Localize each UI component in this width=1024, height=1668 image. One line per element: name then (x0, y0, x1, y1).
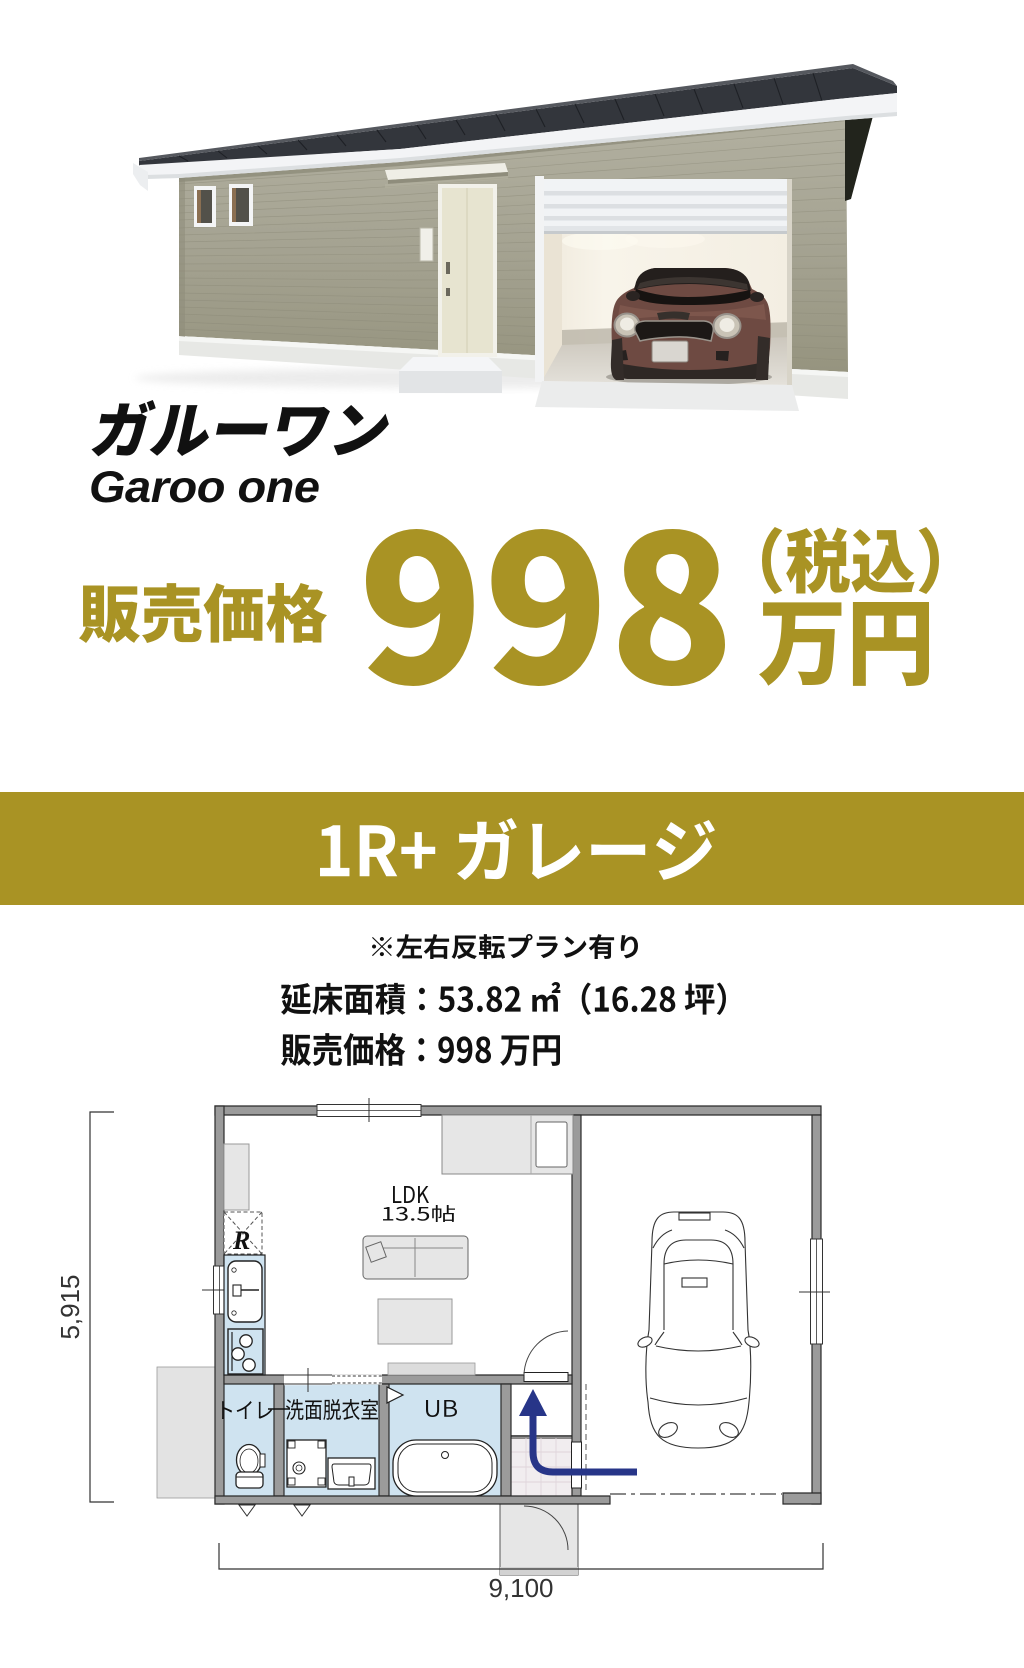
svg-text:5,915: 5,915 (55, 1274, 85, 1339)
svg-text:9,100: 9,100 (488, 1573, 553, 1603)
svg-text:R: R (232, 1226, 250, 1255)
